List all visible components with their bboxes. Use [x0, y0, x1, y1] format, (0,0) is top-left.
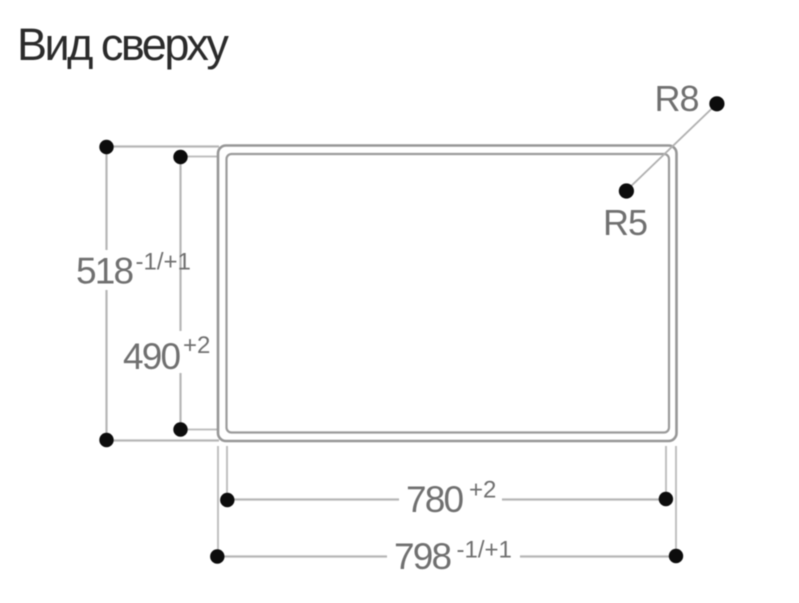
svg-text:+2: +2	[183, 332, 210, 359]
svg-text:-1/+1: -1/+1	[457, 537, 512, 564]
svg-text:+2: +2	[469, 477, 496, 504]
svg-text:780: 780	[406, 479, 464, 520]
svg-text:490: 490	[123, 336, 181, 377]
svg-text:Вид сверху: Вид сверху	[17, 19, 229, 70]
svg-text:798: 798	[394, 536, 451, 577]
svg-text:518: 518	[76, 251, 133, 292]
svg-text:-1/+1: -1/+1	[136, 249, 191, 276]
svg-text:R5: R5	[603, 202, 647, 243]
svg-text:R8: R8	[655, 78, 699, 119]
